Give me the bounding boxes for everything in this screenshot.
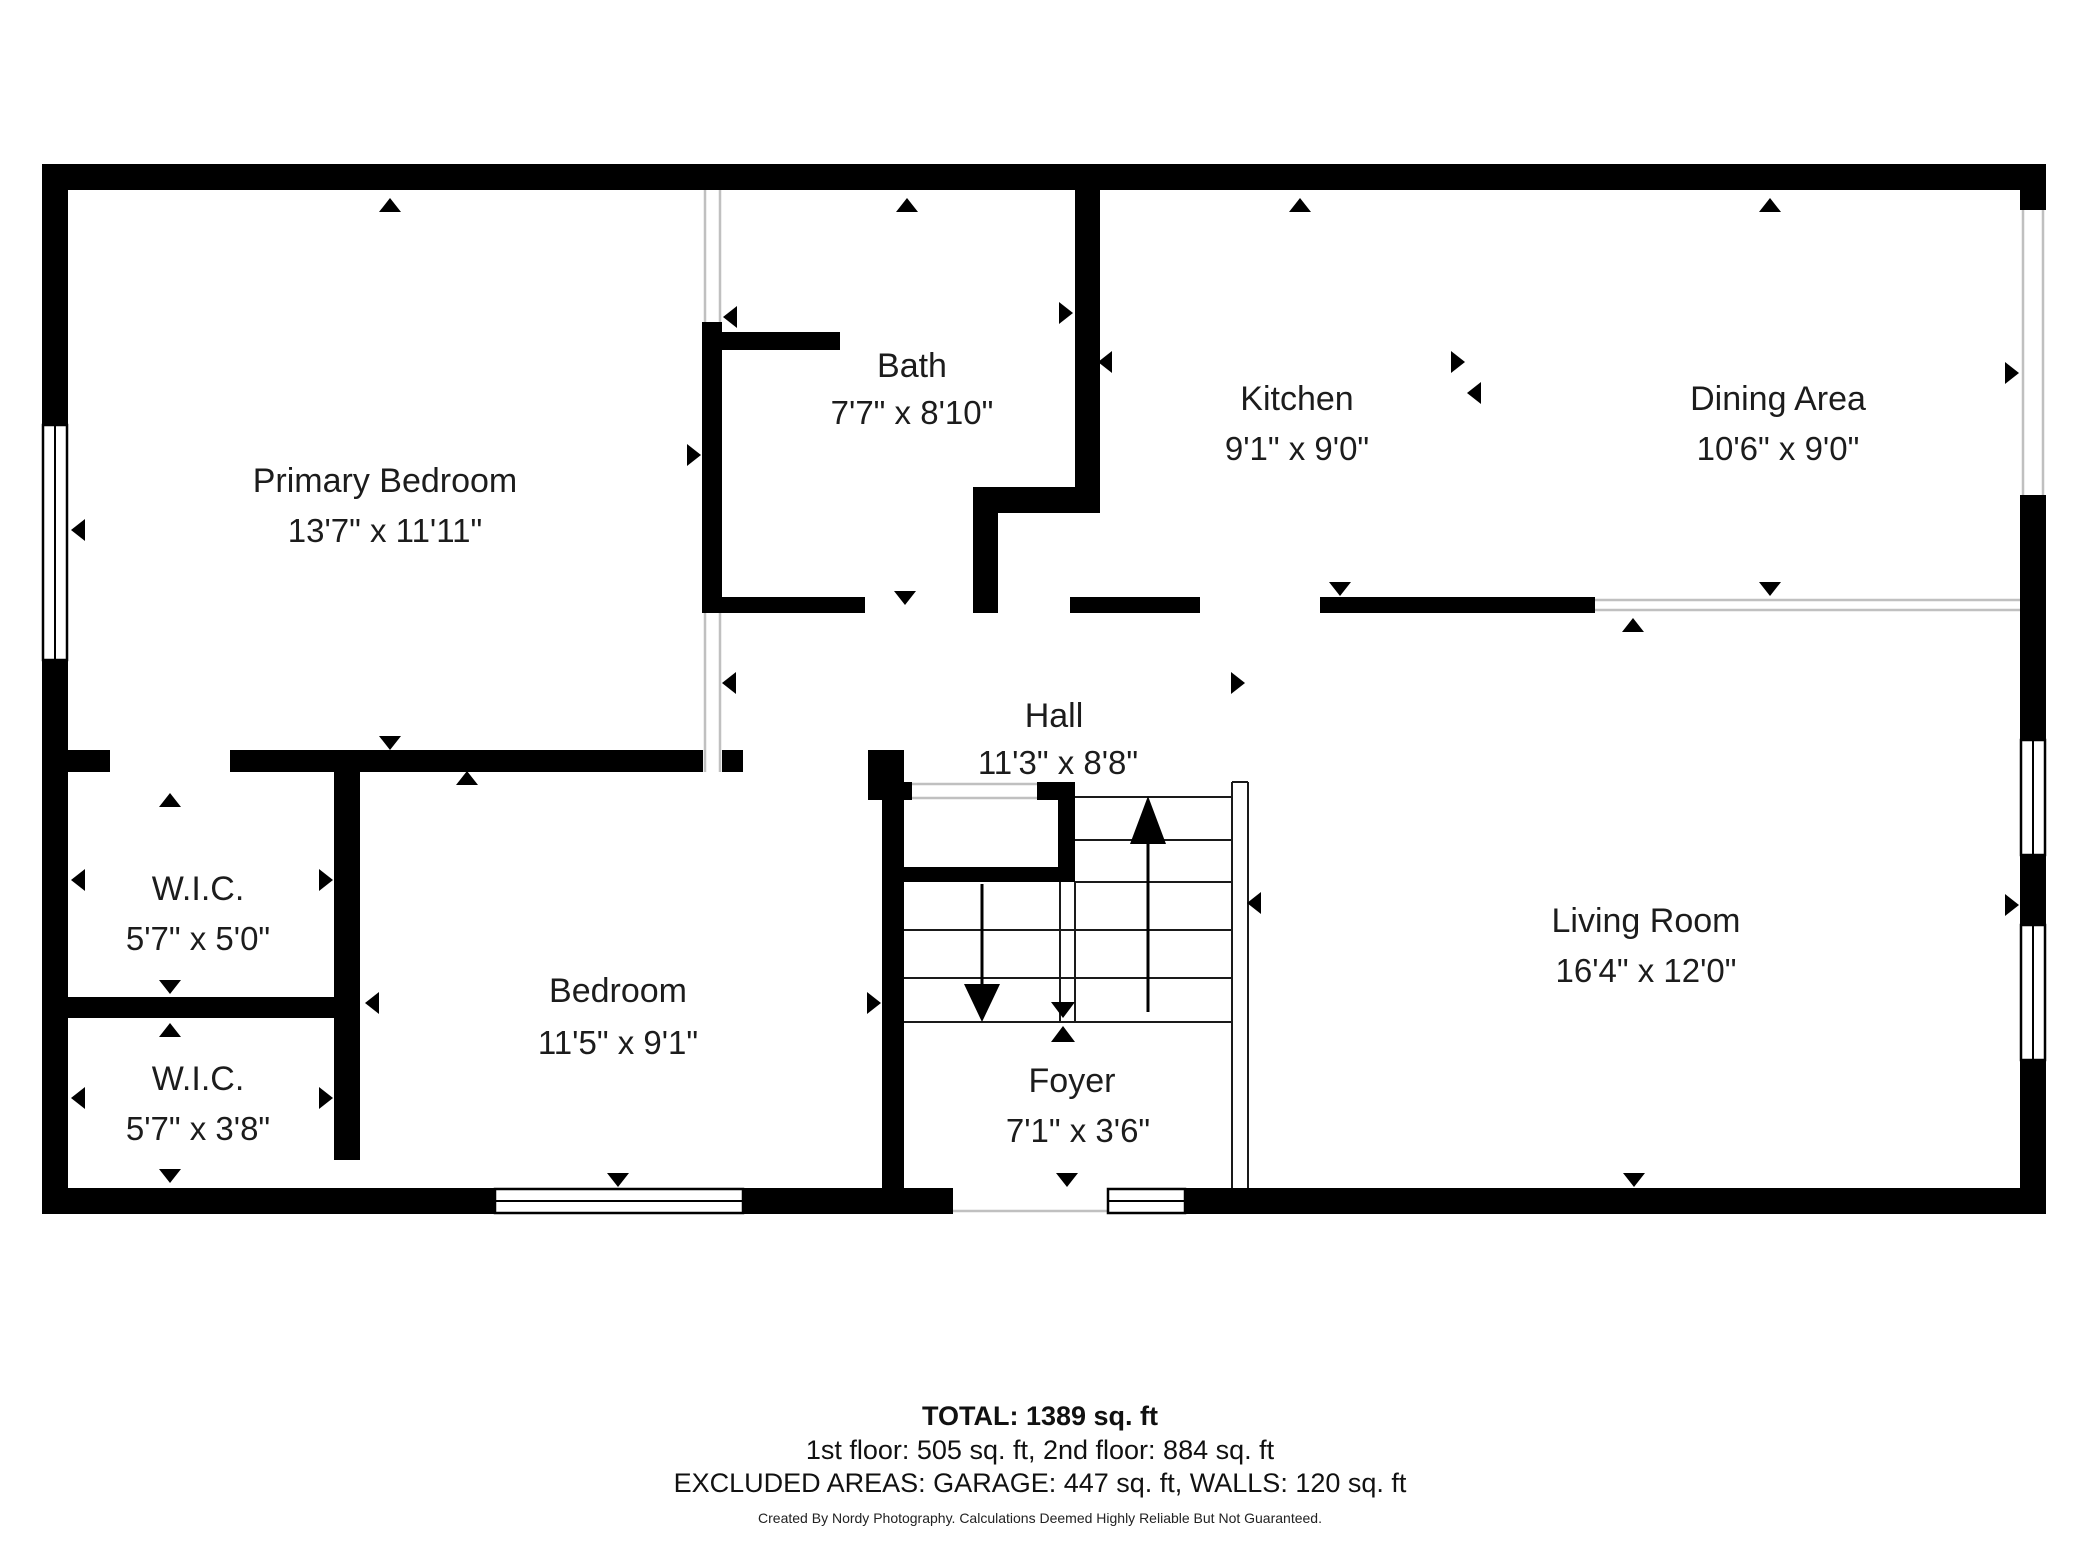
dimension-arrow: [71, 869, 85, 891]
wall-kitchen-jog-horizontal: [973, 487, 1100, 513]
dimension-arrow: [71, 1087, 85, 1109]
wall-bath-stub: [722, 332, 840, 350]
foyer-top-marker-down: [1051, 1002, 1075, 1018]
dimension-arrow: [607, 1173, 629, 1187]
wall-wic-divider: [42, 997, 360, 1018]
room-label-dining-area: Dining Area: [1690, 380, 1866, 418]
wall-wic-bedroom-divider-lower: [334, 1018, 360, 1160]
dimension-arrow: [1759, 582, 1781, 596]
room-dims-wic-upper: 5'7" x 5'0": [126, 920, 270, 957]
dimension-arrow: [319, 1087, 333, 1109]
dimension-arrow: [1329, 582, 1351, 596]
wall-closet-top-right: [1037, 782, 1075, 800]
dimension-arrow: [687, 444, 701, 466]
dimension-arrow: [1451, 351, 1465, 373]
room-labels: Primary Bedroom 13'7" x 11'11" Bath 7'7"…: [126, 347, 1866, 1149]
wall-kitchen-jog-vertical: [973, 513, 998, 613]
dimension-arrow: [379, 736, 401, 750]
dimension-arrow: [1098, 351, 1112, 373]
wall-exterior-right-between-windows: [2020, 855, 2046, 925]
wall-exterior-right-corner: [2020, 164, 2046, 210]
area-summary: TOTAL: 1389 sq. ft 1st floor: 505 sq. ft…: [0, 1400, 2080, 1526]
room-dims-wic-lower: 5'7" x 3'8": [126, 1110, 270, 1147]
room-dims-foyer: 7'1" x 3'6": [1006, 1112, 1150, 1149]
dimension-arrow: [894, 591, 916, 605]
wall-exterior-left-lower: [42, 660, 68, 1214]
floor-plan-page: Primary Bedroom 13'7" x 11'11" Bath 7'7"…: [0, 0, 2080, 1560]
room-dims-bath: 7'7" x 8'10": [831, 394, 994, 431]
dimension-arrow: [723, 306, 737, 328]
room-dims-hall: 11'3" x 8'8": [978, 744, 1138, 781]
wall-closet-bottom: [882, 867, 1075, 882]
foyer-top-marker-up: [1051, 1026, 1075, 1042]
dimension-arrow: [159, 1023, 181, 1037]
room-label-wic-lower: W.I.C.: [152, 1060, 245, 1098]
wall-exterior-right-mid: [2020, 495, 2046, 740]
room-label-foyer: Foyer: [1029, 1062, 1116, 1100]
total-area-text: TOTAL: 1389 sq. ft: [0, 1400, 2080, 1434]
wall-bath-bottom: [702, 597, 865, 613]
room-label-hall: Hall: [1025, 697, 1084, 735]
dimension-arrow: [159, 1169, 181, 1183]
wall-closet-stub-left: [900, 782, 912, 800]
stairs-down-arrow-head: [964, 984, 1000, 1022]
room-label-living-room: Living Room: [1552, 902, 1741, 940]
room-label-kitchen: Kitchen: [1240, 380, 1353, 418]
dimension-arrow: [365, 992, 379, 1014]
room-dims-bedroom: 11'5" x 9'1": [538, 1024, 698, 1061]
dimension-arrow: [71, 519, 85, 541]
wall-exterior-bottom-mid: [743, 1188, 953, 1214]
dimension-arrow: [379, 198, 401, 212]
window-bedroom-bottom: [495, 1189, 743, 1213]
dimension-arrow: [2005, 894, 2019, 916]
room-label-wic-upper: W.I.C.: [152, 870, 245, 908]
dimension-arrow: [1231, 672, 1245, 694]
credit-text: Created By Nordy Photography. Calculatio…: [0, 1510, 2080, 1526]
dimension-arrow: [2005, 362, 2019, 384]
dimension-arrow: [1059, 302, 1073, 324]
wall-exterior-left-upper: [42, 164, 68, 425]
wall-kitchen-bottom-left: [1070, 597, 1200, 613]
wall-foyer-left: [882, 763, 904, 1188]
wall-wic-bedroom-divider-upper: [334, 750, 360, 1018]
dimension-arrow: [1467, 382, 1481, 404]
excluded-areas-text: EXCLUDED AREAS: GARAGE: 447 sq. ft, WALL…: [0, 1467, 2080, 1500]
wall-primary-bedroom-bottom: [230, 750, 743, 772]
room-label-bath: Bath: [877, 347, 947, 385]
dimension-arrow: [456, 771, 478, 785]
dimension-arrow: [319, 869, 333, 891]
room-label-bedroom: Bedroom: [549, 972, 687, 1010]
wall-exterior-top: [42, 164, 2046, 190]
room-dims-dining-area: 10'6" x 9'0": [1697, 430, 1860, 467]
dimension-arrow: [896, 198, 918, 212]
dimension-arrow: [1289, 198, 1311, 212]
window-foyer-sidelight: [1108, 1189, 1185, 1213]
floor-plan-drawing: Primary Bedroom 13'7" x 11'11" Bath 7'7"…: [0, 0, 2080, 1560]
room-dims-kitchen: 9'1" x 9'0": [1225, 430, 1369, 467]
window-primary-left: [43, 425, 67, 660]
wall-primary-bath-divider: [702, 322, 722, 613]
walls: [42, 164, 2046, 1214]
dimension-arrows: [71, 198, 2019, 1187]
dimension-arrow: [867, 992, 881, 1014]
window-living-upper: [2021, 740, 2045, 855]
dimension-arrow: [1759, 198, 1781, 212]
dimension-arrow: [1623, 1173, 1645, 1187]
room-label-primary-bedroom: Primary Bedroom: [253, 462, 518, 500]
open-boundaries: [705, 190, 2043, 1211]
floor-areas-text: 1st floor: 505 sq. ft, 2nd floor: 884 sq…: [0, 1434, 2080, 1467]
dimension-arrow: [722, 672, 736, 694]
window-living-lower: [2021, 925, 2045, 1060]
dimension-arrow: [1247, 892, 1261, 914]
wall-primary-bottom-stub: [68, 750, 110, 772]
dimension-arrow: [1056, 1173, 1078, 1187]
wall-closet-right: [1058, 800, 1075, 867]
dimension-arrow: [1622, 618, 1644, 632]
dimension-arrow: [159, 980, 181, 994]
wall-kitchen-bottom-right: [1320, 597, 1595, 613]
wall-bath-kitchen-divider: [1075, 164, 1100, 497]
room-dims-primary-bedroom: 13'7" x 11'11": [288, 512, 482, 549]
wall-exterior-bottom-left: [42, 1188, 495, 1214]
stairs-up-arrow-head: [1130, 796, 1166, 844]
room-dims-living-room: 16'4" x 12'0": [1556, 952, 1737, 989]
wall-exterior-bottom-right: [1185, 1188, 2046, 1214]
dimension-arrow: [159, 793, 181, 807]
